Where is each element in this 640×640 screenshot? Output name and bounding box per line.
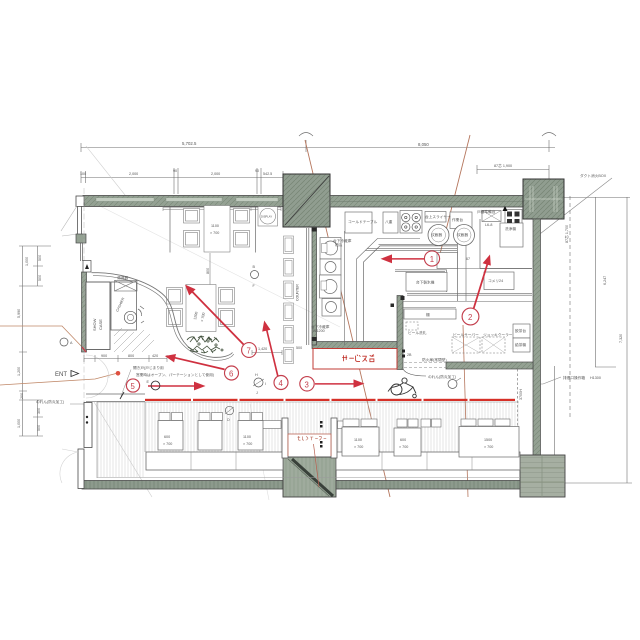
svg-text:600: 600 <box>400 438 406 442</box>
svg-text:2B: 2B <box>407 353 412 357</box>
svg-text:542.5: 542.5 <box>263 172 272 176</box>
svg-text:防火扉(常閉型): 防火扉(常閉型) <box>422 357 447 362</box>
svg-text:1500: 1500 <box>484 438 492 442</box>
svg-text:500: 500 <box>38 255 42 261</box>
svg-text:4: 4 <box>279 379 284 388</box>
svg-text:500: 500 <box>38 275 42 281</box>
svg-text:500: 500 <box>296 346 302 350</box>
svg-text:炊飯器: 炊飯器 <box>431 232 442 237</box>
svg-text:5,702.5: 5,702.5 <box>182 141 197 146</box>
svg-text:D: D <box>227 418 230 422</box>
svg-text:7: 7 <box>247 347 251 356</box>
svg-text:洗浄機: 洗浄機 <box>505 226 516 231</box>
svg-text:7,320: 7,320 <box>619 334 623 343</box>
svg-text:ジョッキクーラー: ジョッキクーラー <box>483 332 513 337</box>
svg-text:6: 6 <box>229 370 233 379</box>
svg-text:COUNTER: COUNTER <box>296 284 300 301</box>
svg-text:6,247: 6,247 <box>603 276 607 285</box>
svg-text:戸棚準備台: 戸棚準備台 <box>477 209 496 214</box>
svg-text:のれん(防炎加工): のれん(防炎加工) <box>36 399 64 404</box>
svg-text:飲茶台: 飲茶台 <box>515 328 526 333</box>
svg-text:1,200: 1,200 <box>17 367 21 376</box>
svg-text:ENT: ENT <box>55 372 67 378</box>
svg-text:100: 100 <box>80 172 86 176</box>
svg-text:棚: 棚 <box>426 312 430 317</box>
svg-text:コメリ24: コメリ24 <box>488 279 503 283</box>
svg-text:営業時はオープン、パーテーションとして使用): 営業時はオープン、パーテーションとして使用) <box>136 372 214 377</box>
svg-text:800: 800 <box>206 268 210 274</box>
svg-text:排煙口操作箱: 排煙口操作箱 <box>563 375 585 380</box>
svg-text:CASE: CASE <box>98 319 103 330</box>
svg-text:87芯 1,700: 87芯 1,700 <box>564 225 569 243</box>
svg-text:炊飯器: 炊飯器 <box>457 232 468 237</box>
svg-text:W1200: W1200 <box>313 329 325 333</box>
svg-text:87芯 1,900: 87芯 1,900 <box>494 163 512 168</box>
svg-text:2,000: 2,000 <box>129 172 138 176</box>
svg-text:1100: 1100 <box>243 435 251 439</box>
svg-text:1,000: 1,000 <box>25 257 29 266</box>
svg-text:コールドテーブル: コールドテーブル <box>348 219 378 224</box>
svg-text:1100: 1100 <box>354 438 362 442</box>
svg-text:I: I <box>265 382 266 386</box>
svg-text:× 700: × 700 <box>163 442 172 446</box>
svg-text:× 700: × 700 <box>354 445 363 449</box>
svg-text:800: 800 <box>128 354 134 358</box>
svg-text:台下製氷機: 台下製氷機 <box>416 280 435 285</box>
svg-text:900: 900 <box>101 354 107 358</box>
svg-text:420: 420 <box>152 354 158 358</box>
svg-text:200: 200 <box>20 393 24 399</box>
svg-text:ビール洗礼: ビール洗礼 <box>408 330 427 335</box>
svg-text:90: 90 <box>255 169 259 173</box>
svg-text:5: 5 <box>131 382 136 391</box>
svg-text:ダクト消火BOX: ダクト消火BOX <box>580 173 607 178</box>
svg-text:のれん(防炎加工): のれん(防炎加工) <box>428 374 456 379</box>
svg-text:500: 500 <box>37 425 41 431</box>
svg-text:1: 1 <box>430 255 434 264</box>
svg-text:開き戸(戸じまり用: 開き戸(戸じまり用 <box>133 365 164 370</box>
svg-text:67: 67 <box>466 257 470 261</box>
svg-text:DISPLAY: DISPLAY <box>261 215 272 219</box>
svg-text:台上スライサー: 台上スライサー <box>425 214 451 219</box>
svg-text:J: J <box>256 391 258 395</box>
svg-text:1100: 1100 <box>211 224 219 228</box>
svg-text:× 700: × 700 <box>484 445 493 449</box>
svg-text:湯沸器: 湯沸器 <box>117 275 128 280</box>
svg-text:1,000: 1,000 <box>17 419 21 428</box>
svg-text:5,990: 5,990 <box>17 309 21 318</box>
svg-text:2: 2 <box>468 313 472 322</box>
svg-text:3: 3 <box>305 380 309 389</box>
svg-text:八重: 八重 <box>385 219 393 224</box>
svg-text:90: 90 <box>173 169 177 173</box>
svg-text:H: H <box>255 373 258 377</box>
svg-text:H1300: H1300 <box>590 376 601 380</box>
svg-text:× 700: × 700 <box>210 231 219 235</box>
svg-text:300: 300 <box>37 408 41 414</box>
svg-text:× 700: × 700 <box>243 442 252 446</box>
svg-text:× 700: × 700 <box>399 445 408 449</box>
svg-text:600: 600 <box>164 435 170 439</box>
svg-text:作業台: 作業台 <box>452 217 463 222</box>
svg-text:SHOW: SHOW <box>92 318 97 331</box>
svg-text:1,420: 1,420 <box>258 347 267 351</box>
svg-text:ビールサーバー: ビールサーバー <box>453 332 479 337</box>
svg-text:物込: 物込 <box>335 242 343 247</box>
svg-text:8,050: 8,050 <box>418 142 429 147</box>
svg-text:2,000: 2,000 <box>211 172 220 176</box>
svg-text:L6-8: L6-8 <box>485 223 492 227</box>
svg-text:給茶機: 給茶機 <box>515 342 526 347</box>
svg-text:3700H: 3700H <box>519 389 523 400</box>
